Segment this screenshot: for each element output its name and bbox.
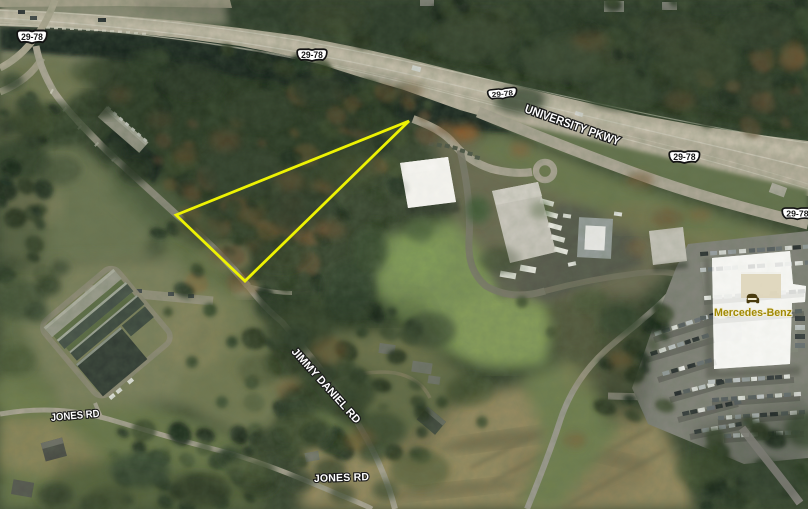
svg-text:Mercedes-Benz: Mercedes-Benz [714, 307, 792, 319]
svg-text:JONES RD: JONES RD [314, 471, 370, 485]
